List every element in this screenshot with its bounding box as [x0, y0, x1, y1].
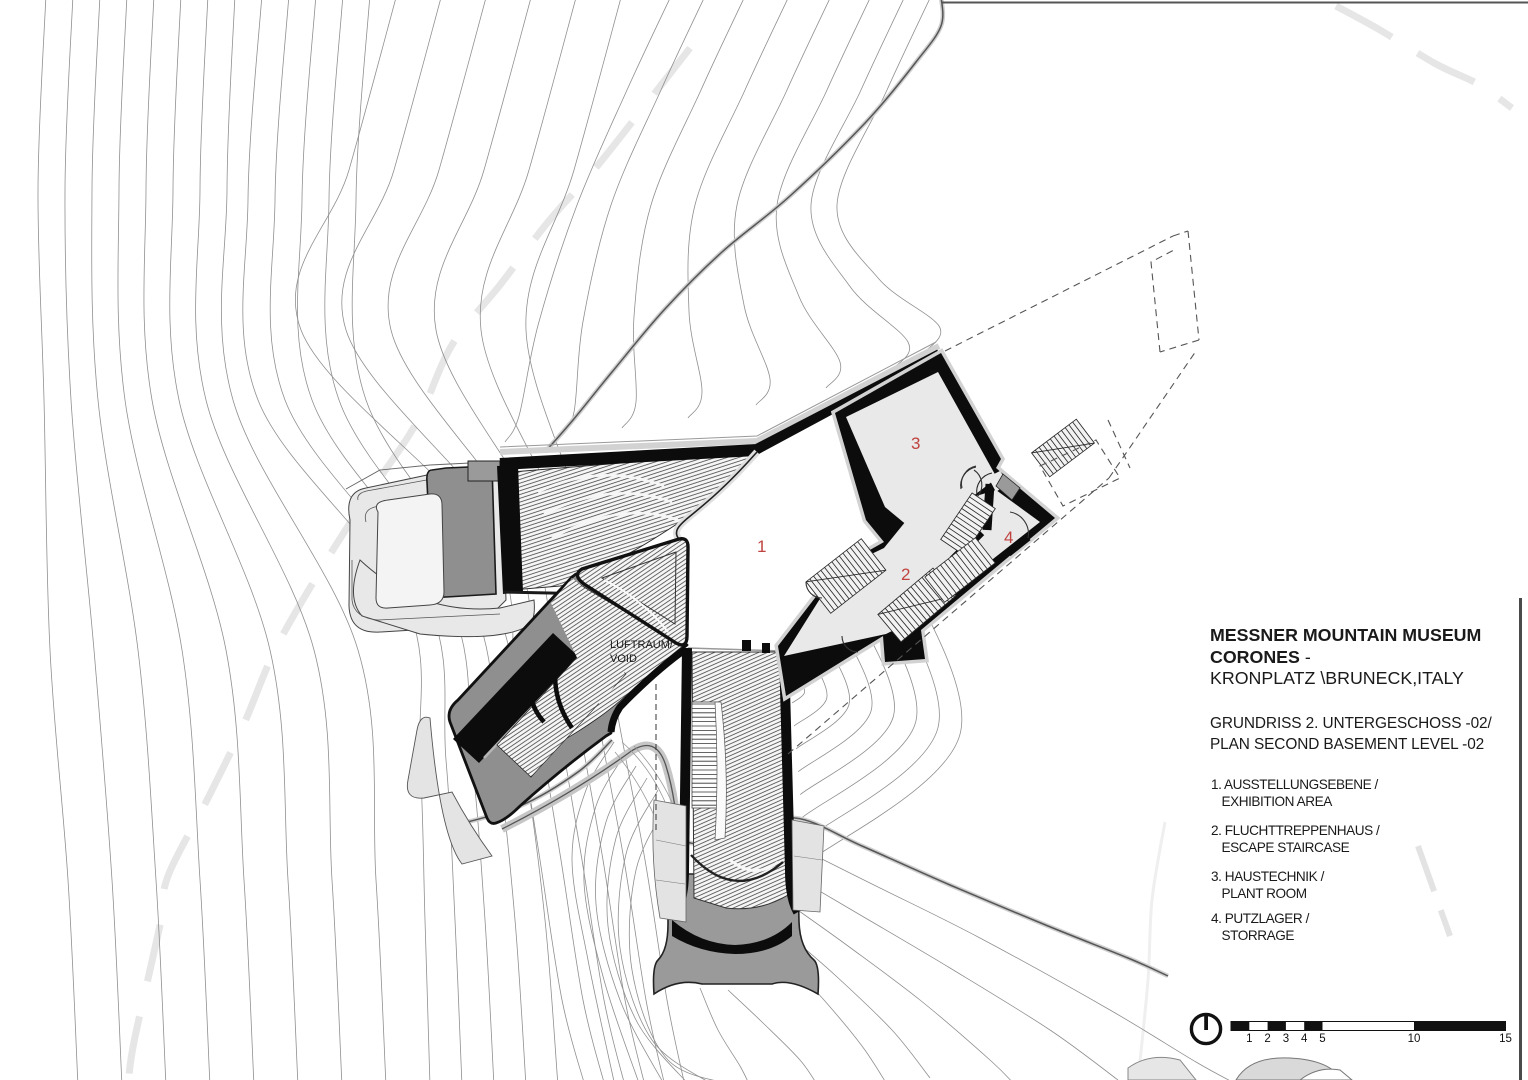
svg-text:10: 10 — [1408, 1033, 1421, 1045]
svg-text:3: 3 — [1283, 1033, 1289, 1045]
svg-text:2: 2 — [901, 565, 910, 584]
svg-text:5: 5 — [1319, 1033, 1325, 1045]
svg-text:15: 15 — [1499, 1033, 1512, 1045]
svg-text:4: 4 — [1301, 1033, 1308, 1045]
svg-text:1: 1 — [1246, 1033, 1252, 1045]
svg-text:4: 4 — [1004, 528, 1013, 547]
svg-text:2: 2 — [1264, 1033, 1270, 1045]
svg-text:LUFTRAUM/: LUFTRAUM/ — [610, 639, 674, 651]
svg-text:3: 3 — [911, 434, 920, 453]
svg-text:1: 1 — [757, 537, 766, 556]
svg-text:VOID: VOID — [610, 653, 637, 665]
